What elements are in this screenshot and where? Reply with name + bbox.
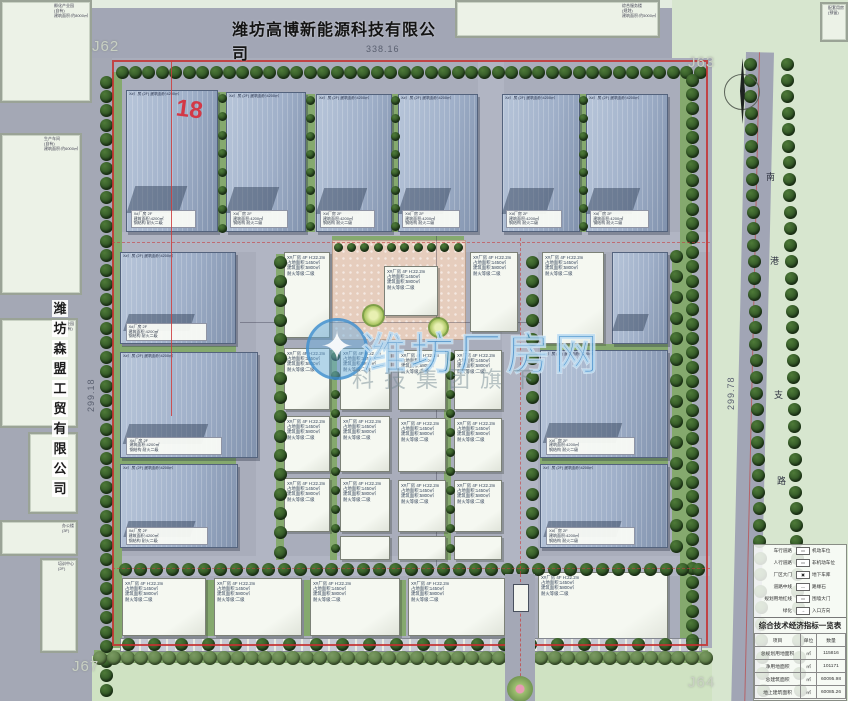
table-cell: 总建筑面积 [755, 673, 801, 686]
table-row: 总建筑面积㎡60095.98 [755, 673, 846, 686]
tree-icon [100, 452, 113, 465]
tree-icon [100, 90, 113, 103]
tree-icon [752, 453, 765, 466]
legend-left-label: 人行道路 [756, 560, 794, 566]
table-row: 总规划用地面积㎡115816 [755, 647, 846, 660]
indicator-table: 项目单位数量 总规划用地面积㎡115816净用地面积㎡101171总建筑面积㎡6… [754, 633, 846, 699]
legend-swatch-icon: ▭ [796, 559, 810, 567]
table-row: 净用地面积㎡101171 [755, 660, 846, 673]
tree-icon [396, 651, 410, 665]
tree-icon [745, 140, 758, 153]
tree-icon [753, 519, 766, 532]
table-cell: ㎡ [801, 673, 817, 686]
corner-label-j62: J62 [92, 38, 119, 55]
tree-icon [100, 669, 113, 682]
tree-icon [100, 76, 113, 89]
tree-icon [100, 206, 113, 219]
tree-icon [100, 293, 113, 306]
tree-icon [785, 272, 798, 285]
tree-icon [245, 651, 259, 665]
tree-icon [100, 133, 113, 146]
table-cell: 60085.26 [816, 686, 845, 699]
tree-icon [746, 156, 759, 169]
tree-icon [744, 58, 757, 71]
tree-icon [100, 307, 113, 320]
west-company-char: 公 [52, 460, 68, 477]
legend-right-label: 入口方向 [812, 608, 830, 614]
neighbour-building: 综合服务楼(规划)建筑面积:约5000㎡ [455, 0, 660, 38]
neighbour-building-label: 配套用房(预留) [828, 6, 844, 16]
indicator-table-title: 综合技术经济指标一览表 [754, 617, 846, 633]
tree-icon [790, 502, 803, 515]
legend-row: 规划用地红线▭围墙大门 [754, 593, 846, 605]
west-company-char: 盟 [52, 360, 68, 377]
tree-icon [787, 371, 800, 384]
tree-icon [784, 239, 797, 252]
legend-row: 道路中线—路缘石 [754, 581, 846, 593]
legend-left-label: 绿化 [756, 608, 794, 614]
tree-icon [548, 651, 562, 665]
tree-icon [747, 206, 760, 219]
tree-icon [286, 651, 300, 665]
table-header-cell: 项目 [755, 634, 801, 647]
west-company-char: 限 [52, 440, 68, 457]
neighbour-building-label: 生产车间(自有)建筑面积:约6000㎡ [44, 137, 78, 151]
neighbour-building-label: 综合服务楼(规划)建筑面积:约5000㎡ [622, 4, 656, 18]
indicator-table-body: 总规划用地面积㎡115816净用地面积㎡101171总建筑面积㎡60095.98… [755, 647, 846, 699]
tree-icon [100, 423, 113, 436]
tree-icon [746, 173, 759, 186]
west-company-char: 有 [52, 420, 68, 437]
label-line: (预留) [828, 11, 844, 16]
tree-icon [100, 394, 113, 407]
tree-icon [355, 651, 369, 665]
tree-icon [783, 173, 796, 186]
tree-icon [100, 380, 113, 393]
tree-icon [748, 272, 761, 285]
legend-swatch-icon: ▭ [796, 547, 810, 555]
tree-icon [341, 651, 355, 665]
legend-left-label: 厂区大门 [756, 572, 794, 578]
table-cell: 总规划用地面积 [755, 647, 801, 660]
tree-icon [603, 651, 617, 665]
tree-icon [750, 371, 763, 384]
neighbour-building-label: 孵化产业园(自有)建筑面积:约8000㎡ [54, 4, 88, 18]
tree-icon [100, 264, 113, 277]
tree-icon [749, 338, 762, 351]
tree-icon [785, 255, 798, 268]
tree-icon [749, 321, 762, 334]
legend-right-label: 路缘石 [812, 584, 826, 590]
indicator-table-header: 项目单位数量 [755, 634, 846, 647]
legend-right-label: 机动车位 [812, 548, 830, 554]
tree-icon [100, 481, 113, 494]
west-company-char: 工 [52, 380, 68, 397]
road-name-char: 路 [777, 474, 786, 487]
legend-swatch-icon: — [796, 583, 810, 591]
dimension-top: 338.16 [366, 44, 400, 54]
neighbour-building: 培训中心(2F) [40, 558, 78, 653]
dimension-right: 299.78 [726, 376, 736, 410]
legend-right-label: 地下车库 [812, 572, 830, 578]
table-cell: 115816 [816, 647, 845, 660]
tree-icon [100, 495, 113, 508]
tree-icon [789, 453, 802, 466]
neighbour-building: 办公楼(3F) [0, 520, 78, 556]
west-company-char: 坊 [52, 320, 68, 337]
label-line: 建筑面积:约5000㎡ [622, 14, 656, 19]
neighbour-building-label: 培训中心(2F) [58, 562, 74, 572]
road-name-char: 南 [766, 170, 775, 183]
site-plan-canvas: X#厂房 (2F) 建筑面积:4200㎡X#厂房 2F建筑面积:4200㎡钢结构… [0, 0, 848, 701]
tree-icon [100, 611, 113, 624]
table-cell: 地上建筑面积 [755, 686, 801, 699]
legend-swatch-icon: ▣ [796, 571, 810, 579]
tree-icon [783, 156, 796, 169]
tree-icon [782, 107, 795, 120]
tree-icon [217, 651, 231, 665]
legend-left-label: 道路中线 [756, 584, 794, 590]
tree-icon [751, 420, 764, 433]
dimension-left: 299.18 [86, 378, 96, 412]
tree-icon [176, 651, 190, 665]
tree-icon [107, 651, 121, 665]
tree-icon [781, 74, 794, 87]
tree-icon [100, 336, 113, 349]
neighbour-building: 孵化产业园(自有)建筑面积:约8000㎡ [0, 0, 92, 103]
label-line: 建筑面积:约6000㎡ [44, 147, 78, 152]
tree-icon [100, 626, 113, 639]
gate-house [513, 584, 529, 612]
road-name-char: 港 [770, 254, 779, 267]
tree-icon [100, 466, 113, 479]
tree-icon [100, 322, 113, 335]
legend: 车行道路▭机动车位人行道路▭非机动车位厂区大门▣地下车库道路中线—路缘石规划用地… [754, 545, 846, 617]
survey-line [112, 242, 710, 244]
neighbour-building: 配套用房(预留) [820, 2, 848, 42]
table-cell: 净用地面积 [755, 660, 801, 673]
legend-right-label: 围墙大门 [812, 596, 830, 602]
legend-row: 人行道路▭非机动车位 [754, 557, 846, 569]
tree-icon [424, 651, 438, 665]
tree-icon [121, 651, 135, 665]
legend-row: 车行道路▭机动车位 [754, 545, 846, 557]
tree-icon [100, 235, 113, 248]
legend-swatch-icon: ▭ [796, 595, 810, 603]
legend-and-indicator-panel: 车行道路▭机动车位人行道路▭非机动车位厂区大门▣地下车库道路中线—路缘石规划用地… [753, 544, 847, 701]
tree-icon [100, 220, 113, 233]
tree-icon [788, 420, 801, 433]
tree-icon [300, 651, 314, 665]
tree-icon [644, 651, 658, 665]
table-cell: ㎡ [801, 647, 817, 660]
survey-line [171, 60, 172, 416]
red-plot-number: 18 [174, 94, 204, 125]
tree-icon [575, 651, 589, 665]
tree-icon [790, 519, 803, 532]
tree-icon [100, 539, 113, 552]
tree-icon [100, 191, 113, 204]
legend-row: 绿化→入口方向 [754, 605, 846, 617]
west-company-char: 潍 [52, 300, 68, 317]
north-company-title: 潍坊高博新能源科技有限公司 [232, 16, 438, 64]
tree-icon [100, 177, 113, 190]
tree-icon [100, 408, 113, 421]
tree-icon [589, 651, 603, 665]
tree-icon [100, 278, 113, 291]
corner-label-j64: J64 [688, 674, 715, 691]
tree-icon [749, 305, 762, 318]
tree-icon [658, 651, 672, 665]
tree-icon [781, 58, 794, 71]
label-line: (3F) [62, 529, 74, 534]
tree-icon [231, 651, 245, 665]
tree-icon [100, 597, 113, 610]
tree-icon [100, 148, 113, 161]
legend-row: 厂区大门▣地下车库 [754, 569, 846, 581]
tree-icon [100, 365, 113, 378]
table-cell: ㎡ [801, 660, 817, 673]
west-company-char: 森 [52, 340, 68, 357]
tree-icon [782, 140, 795, 153]
legend-swatch-icon: → [796, 607, 810, 615]
tree-icon [748, 255, 761, 268]
neighbour-building: 生产车间(自有)建筑面积:约6000㎡ [0, 133, 82, 295]
table-cell: 60095.98 [816, 673, 845, 686]
tree-icon [699, 651, 713, 665]
tree-icon [784, 206, 797, 219]
survey-line [520, 238, 522, 574]
table-row: 地上建筑面积㎡60085.26 [755, 686, 846, 699]
tree-icon [747, 239, 760, 252]
legend-right-label: 非机动车位 [812, 560, 835, 566]
tree-icon [100, 249, 113, 262]
table-cell: 101171 [816, 660, 845, 673]
legend-left-label: 规划用地红线 [756, 596, 794, 602]
red-boundary-line [112, 60, 708, 646]
west-company-char: 贸 [52, 400, 68, 417]
tree-icon [479, 651, 493, 665]
tree-icon [786, 338, 799, 351]
table-header-cell: 数量 [816, 634, 845, 647]
tree-icon [100, 162, 113, 175]
tree-icon [162, 651, 176, 665]
tree-icon [750, 354, 763, 367]
label-line: (2F) [58, 567, 74, 572]
table-header-cell: 单位 [801, 634, 817, 647]
corner-label-j67: J67 [72, 658, 99, 675]
road-name-char: 支 [774, 388, 783, 401]
tree-icon [100, 437, 113, 450]
tree-icon [410, 651, 424, 665]
tree-icon [534, 651, 548, 665]
tree-icon [100, 104, 113, 117]
corner-label-j63: J63 [688, 54, 715, 71]
tree-icon [100, 568, 113, 581]
tree-icon [465, 651, 479, 665]
tree-icon [148, 651, 162, 665]
tree-icon [100, 684, 113, 697]
tree-icon [451, 651, 465, 665]
tree-icon [100, 582, 113, 595]
tree-icon [100, 524, 113, 537]
label-line: 建筑面积:约8000㎡ [54, 14, 88, 19]
tree-icon [753, 502, 766, 515]
tree-icon [100, 119, 113, 132]
tree-icon [100, 351, 113, 364]
legend-left-label: 车行道路 [756, 548, 794, 554]
tree-icon [100, 510, 113, 523]
tree-icon [786, 321, 799, 334]
entry-flower-bed [507, 676, 533, 701]
survey-line [112, 568, 710, 570]
west-company-char: 司 [52, 480, 68, 497]
tree-icon [787, 354, 800, 367]
neighbour-building-label: 办公楼(3F) [62, 524, 74, 534]
table-cell: ㎡ [801, 686, 817, 699]
tree-icon [786, 305, 799, 318]
tree-icon [100, 553, 113, 566]
tree-icon [272, 651, 286, 665]
